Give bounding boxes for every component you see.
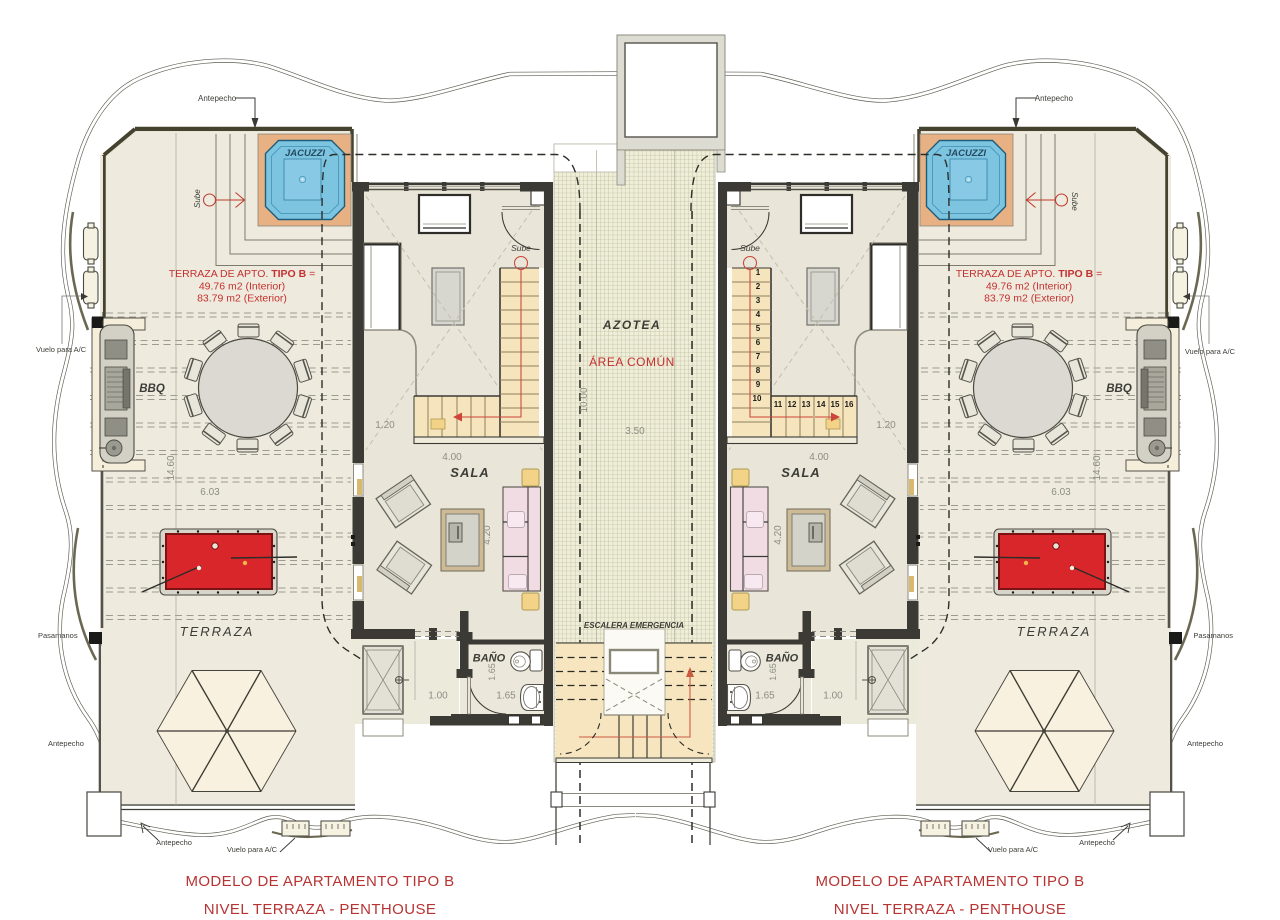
svg-text:3.50: 3.50 xyxy=(625,426,645,437)
svg-text:BBQ: BBQ xyxy=(1106,383,1132,395)
svg-text:Antepecho: Antepecho xyxy=(156,838,192,847)
svg-text:Antepecho: Antepecho xyxy=(1035,94,1074,103)
svg-text:1.65: 1.65 xyxy=(487,663,497,681)
svg-text:3: 3 xyxy=(756,296,761,305)
svg-text:6: 6 xyxy=(756,338,761,347)
svg-text:14: 14 xyxy=(817,400,826,409)
svg-text:BAÑO: BAÑO xyxy=(766,652,799,665)
svg-text:1: 1 xyxy=(756,268,761,277)
svg-text:Sube: Sube xyxy=(1070,192,1079,211)
svg-text:Pasamanos: Pasamanos xyxy=(1193,631,1233,640)
svg-text:Sube: Sube xyxy=(511,243,531,253)
svg-text:TERRAZA: TERRAZA xyxy=(1017,624,1092,639)
svg-text:Vuelo para A/C: Vuelo para A/C xyxy=(1185,347,1236,356)
svg-text:ÁREA COMÚN: ÁREA COMÚN xyxy=(589,354,675,369)
svg-text:1.20: 1.20 xyxy=(876,420,896,431)
svg-text:4.20: 4.20 xyxy=(773,525,784,545)
svg-text:BAÑO: BAÑO xyxy=(473,652,506,665)
svg-text:2: 2 xyxy=(756,282,761,291)
svg-text:14.60: 14.60 xyxy=(166,455,177,480)
svg-text:ESCALERA EMERGENCIA: ESCALERA EMERGENCIA xyxy=(584,621,684,630)
svg-text:6.03: 6.03 xyxy=(200,487,220,498)
svg-text:TERRAZA DE APTO. TIPO B =: TERRAZA DE APTO. TIPO B = xyxy=(956,268,1103,280)
svg-text:BBQ: BBQ xyxy=(139,383,165,395)
svg-text:Pasamanos: Pasamanos xyxy=(38,631,78,640)
svg-text:MODELO DE APARTAMENTO TIPO B: MODELO DE APARTAMENTO TIPO B xyxy=(185,873,454,890)
svg-text:JACUZZI: JACUZZI xyxy=(285,148,325,159)
svg-text:SALA: SALA xyxy=(781,465,820,480)
svg-text:Sube: Sube xyxy=(193,189,202,208)
svg-text:Antepecho: Antepecho xyxy=(48,739,84,748)
svg-text:TERRAZA DE APTO. TIPO B =: TERRAZA DE APTO. TIPO B = xyxy=(169,268,316,280)
svg-text:9: 9 xyxy=(756,380,761,389)
svg-text:Vuelo para A/C: Vuelo para A/C xyxy=(36,345,87,354)
svg-text:11: 11 xyxy=(774,400,783,409)
svg-text:NIVEL TERRAZA - PENTHOUSE: NIVEL TERRAZA - PENTHOUSE xyxy=(834,901,1067,918)
svg-text:16: 16 xyxy=(845,400,854,409)
svg-text:Vuelo para A/C: Vuelo para A/C xyxy=(988,845,1039,854)
svg-text:Vuelo para A/C: Vuelo para A/C xyxy=(227,845,278,854)
svg-text:4.00: 4.00 xyxy=(809,452,829,463)
svg-text:5: 5 xyxy=(756,324,761,333)
svg-text:83.79 m2 (Exterior): 83.79 m2 (Exterior) xyxy=(984,293,1074,305)
svg-text:10: 10 xyxy=(753,394,762,403)
svg-text:MODELO DE APARTAMENTO TIPO B: MODELO DE APARTAMENTO TIPO B xyxy=(815,873,1084,890)
svg-text:6.03: 6.03 xyxy=(1051,487,1071,498)
svg-text:1.65: 1.65 xyxy=(768,663,778,681)
svg-text:Antepecho: Antepecho xyxy=(1187,739,1223,748)
svg-text:NIVEL TERRAZA - PENTHOUSE: NIVEL TERRAZA - PENTHOUSE xyxy=(204,901,437,918)
svg-text:49.76 m2 (Interior): 49.76 m2 (Interior) xyxy=(199,281,285,293)
svg-text:8: 8 xyxy=(756,366,761,375)
svg-text:SALA: SALA xyxy=(450,465,489,480)
svg-text:83.79 m2 (Exterior): 83.79 m2 (Exterior) xyxy=(197,293,287,305)
svg-text:49.76 m2 (Interior): 49.76 m2 (Interior) xyxy=(986,281,1072,293)
svg-text:15: 15 xyxy=(831,400,840,409)
svg-text:10.00: 10.00 xyxy=(579,387,590,412)
svg-text:1.00: 1.00 xyxy=(823,691,843,702)
svg-text:1.00: 1.00 xyxy=(428,691,448,702)
svg-text:1.65: 1.65 xyxy=(755,691,775,702)
svg-text:13: 13 xyxy=(802,400,811,409)
svg-text:12: 12 xyxy=(788,400,797,409)
svg-text:4.20: 4.20 xyxy=(482,525,493,545)
svg-text:TERRAZA: TERRAZA xyxy=(180,624,255,639)
svg-text:Antepecho: Antepecho xyxy=(198,94,237,103)
svg-text:Antepecho: Antepecho xyxy=(1079,838,1115,847)
svg-text:AZOTEA: AZOTEA xyxy=(602,318,661,332)
svg-text:4.00: 4.00 xyxy=(442,452,462,463)
svg-text:7: 7 xyxy=(756,352,761,361)
svg-text:1.65: 1.65 xyxy=(496,691,516,702)
svg-text:Sube: Sube xyxy=(740,243,760,253)
svg-text:JACUZZI: JACUZZI xyxy=(946,148,986,159)
svg-text:1.20: 1.20 xyxy=(375,420,395,431)
svg-text:14.60: 14.60 xyxy=(1092,455,1103,480)
svg-text:4: 4 xyxy=(756,310,761,319)
